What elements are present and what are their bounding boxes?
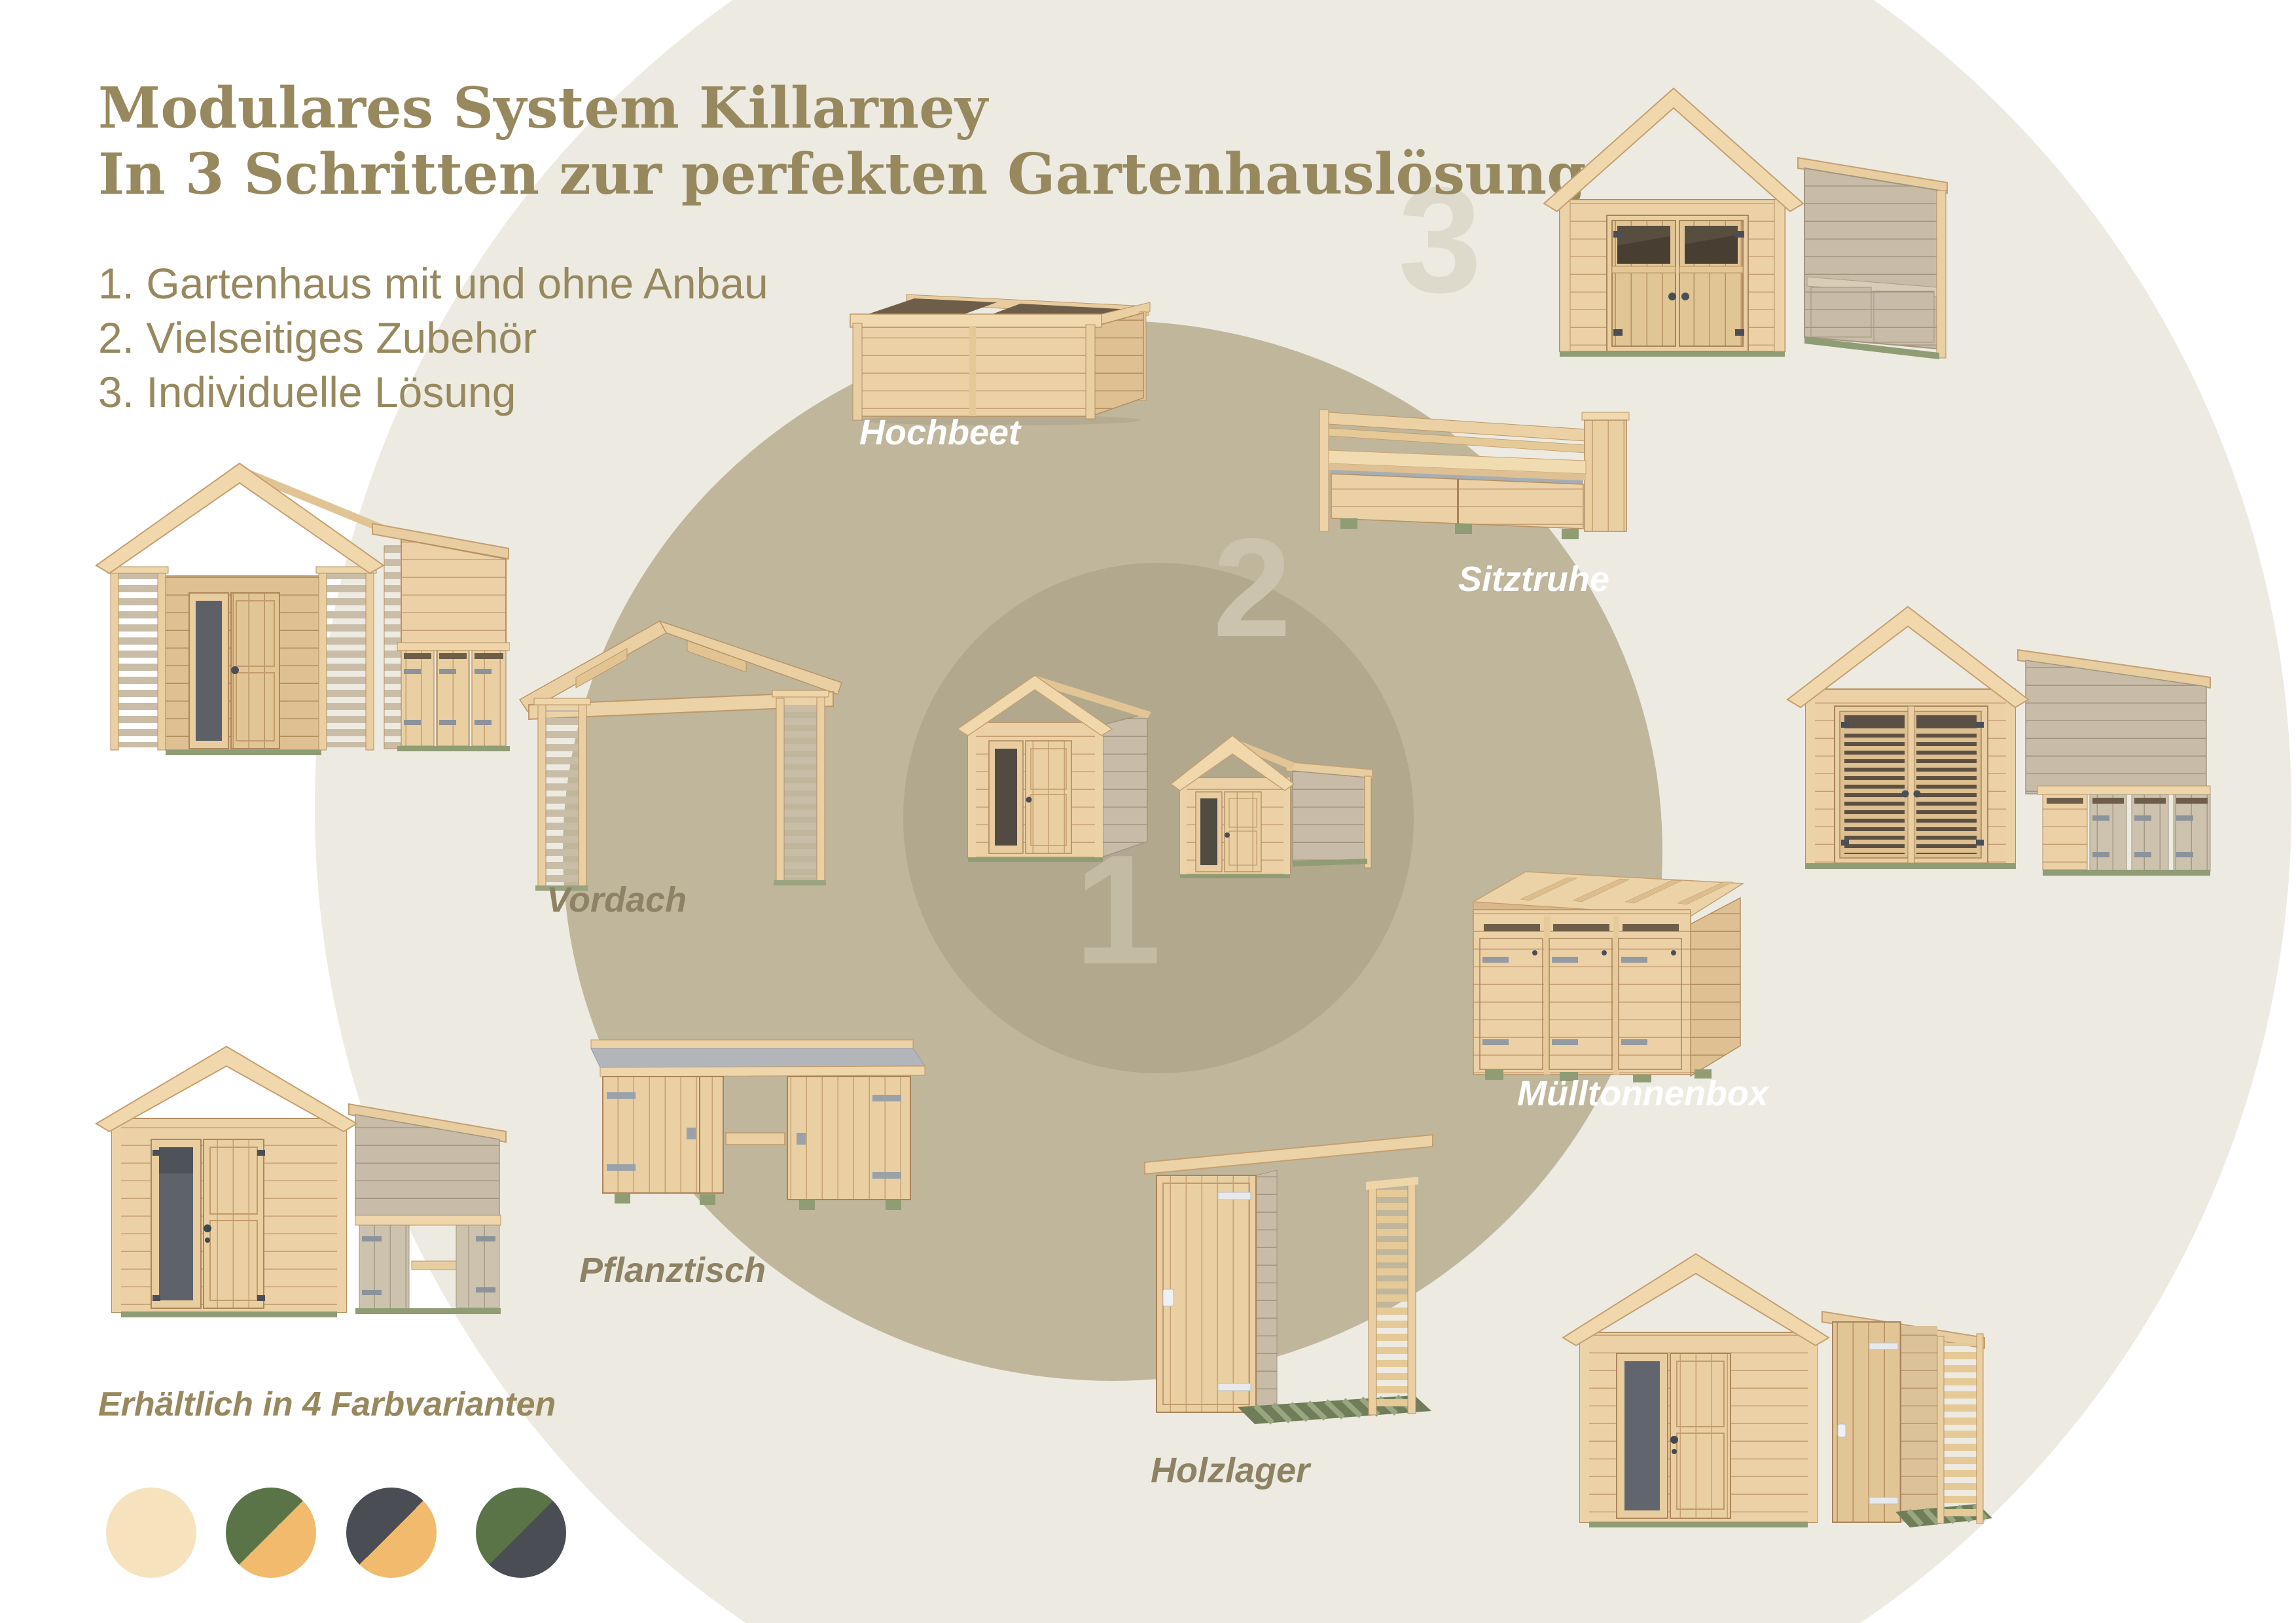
product-gartenhaus-lamellentueren xyxy=(1784,597,2214,879)
steps-list: 1. Gartenhaus mit und ohne Anbau 2. Viel… xyxy=(98,257,768,419)
product-holzlager xyxy=(1139,1124,1446,1432)
holzlager-illustration xyxy=(1139,1124,1446,1432)
label-sitztruhe: Sitztruhe xyxy=(1458,562,1609,597)
gartenhaus-lamellentueren-illustration xyxy=(1784,597,2214,879)
product-gartenhaus-pflanztisch-anbau xyxy=(92,1040,510,1325)
color-swatch-natur xyxy=(106,1488,196,1578)
gartenhaus-pflanztisch-anbau-illustration xyxy=(92,1040,510,1325)
label-vordach: Vordach xyxy=(547,882,687,918)
gartenhaus-holzlager-anbau-illustration xyxy=(1555,1247,1996,1535)
label-pflanztisch: Pflanztisch xyxy=(579,1253,766,1288)
gartenhaus-mit-anbau-illustration xyxy=(1537,80,1952,363)
product-pflanztisch xyxy=(571,1029,940,1215)
gartenhaus-basis-paar-illustration xyxy=(955,666,1374,879)
hochbeet-illustration xyxy=(846,285,1154,427)
product-muelltonnenbox xyxy=(1462,861,1747,1086)
color-swatch-gruen-orange xyxy=(226,1488,316,1578)
step-item-1: 1. Gartenhaus mit und ohne Anbau xyxy=(98,257,768,311)
label-hochbeet: Hochbeet xyxy=(859,415,1020,450)
page-title-line1: Modulares System Killarney xyxy=(98,76,1586,142)
product-gartenhaus-lamellen-anbau xyxy=(92,454,510,766)
product-gartenhaus-mit-anbau xyxy=(1537,80,1952,363)
pflanztisch-illustration xyxy=(571,1029,940,1215)
infographic-canvas: 3 2 1 Modulares System Killarney In 3 Sc… xyxy=(0,0,2296,1623)
page-title-line2: In 3 Schritten zur perfekten Gartenhausl… xyxy=(98,142,1586,208)
step-item-3: 3. Individuelle Lösung xyxy=(98,365,768,419)
product-sitztruhe xyxy=(1295,383,1652,550)
vordach-illustration xyxy=(516,600,846,893)
step-item-2: 2. Vielseitiges Zubehör xyxy=(98,311,768,365)
color-variants-heading: Erhältlich in 4 Farbvarianten xyxy=(98,1387,556,1421)
label-muelltonnenbox: Mülltonnenbox xyxy=(1517,1076,1768,1111)
product-gartenhaus-basis-paar xyxy=(955,666,1374,879)
label-holzlager: Holzlager xyxy=(1151,1453,1310,1488)
muelltonnenbox-illustration xyxy=(1462,861,1747,1086)
product-hochbeet xyxy=(846,285,1154,427)
product-gartenhaus-holzlager-anbau xyxy=(1555,1247,1996,1535)
page-title: Modulares System Killarney In 3 Schritte… xyxy=(98,76,1586,207)
color-swatch-gruen-anthrazit xyxy=(476,1488,566,1578)
color-swatch-anthrazit-orange xyxy=(346,1488,437,1578)
gartenhaus-lamellen-anbau-illustration xyxy=(92,454,510,766)
product-vordach xyxy=(516,600,846,893)
sitztruhe-illustration xyxy=(1295,383,1652,550)
